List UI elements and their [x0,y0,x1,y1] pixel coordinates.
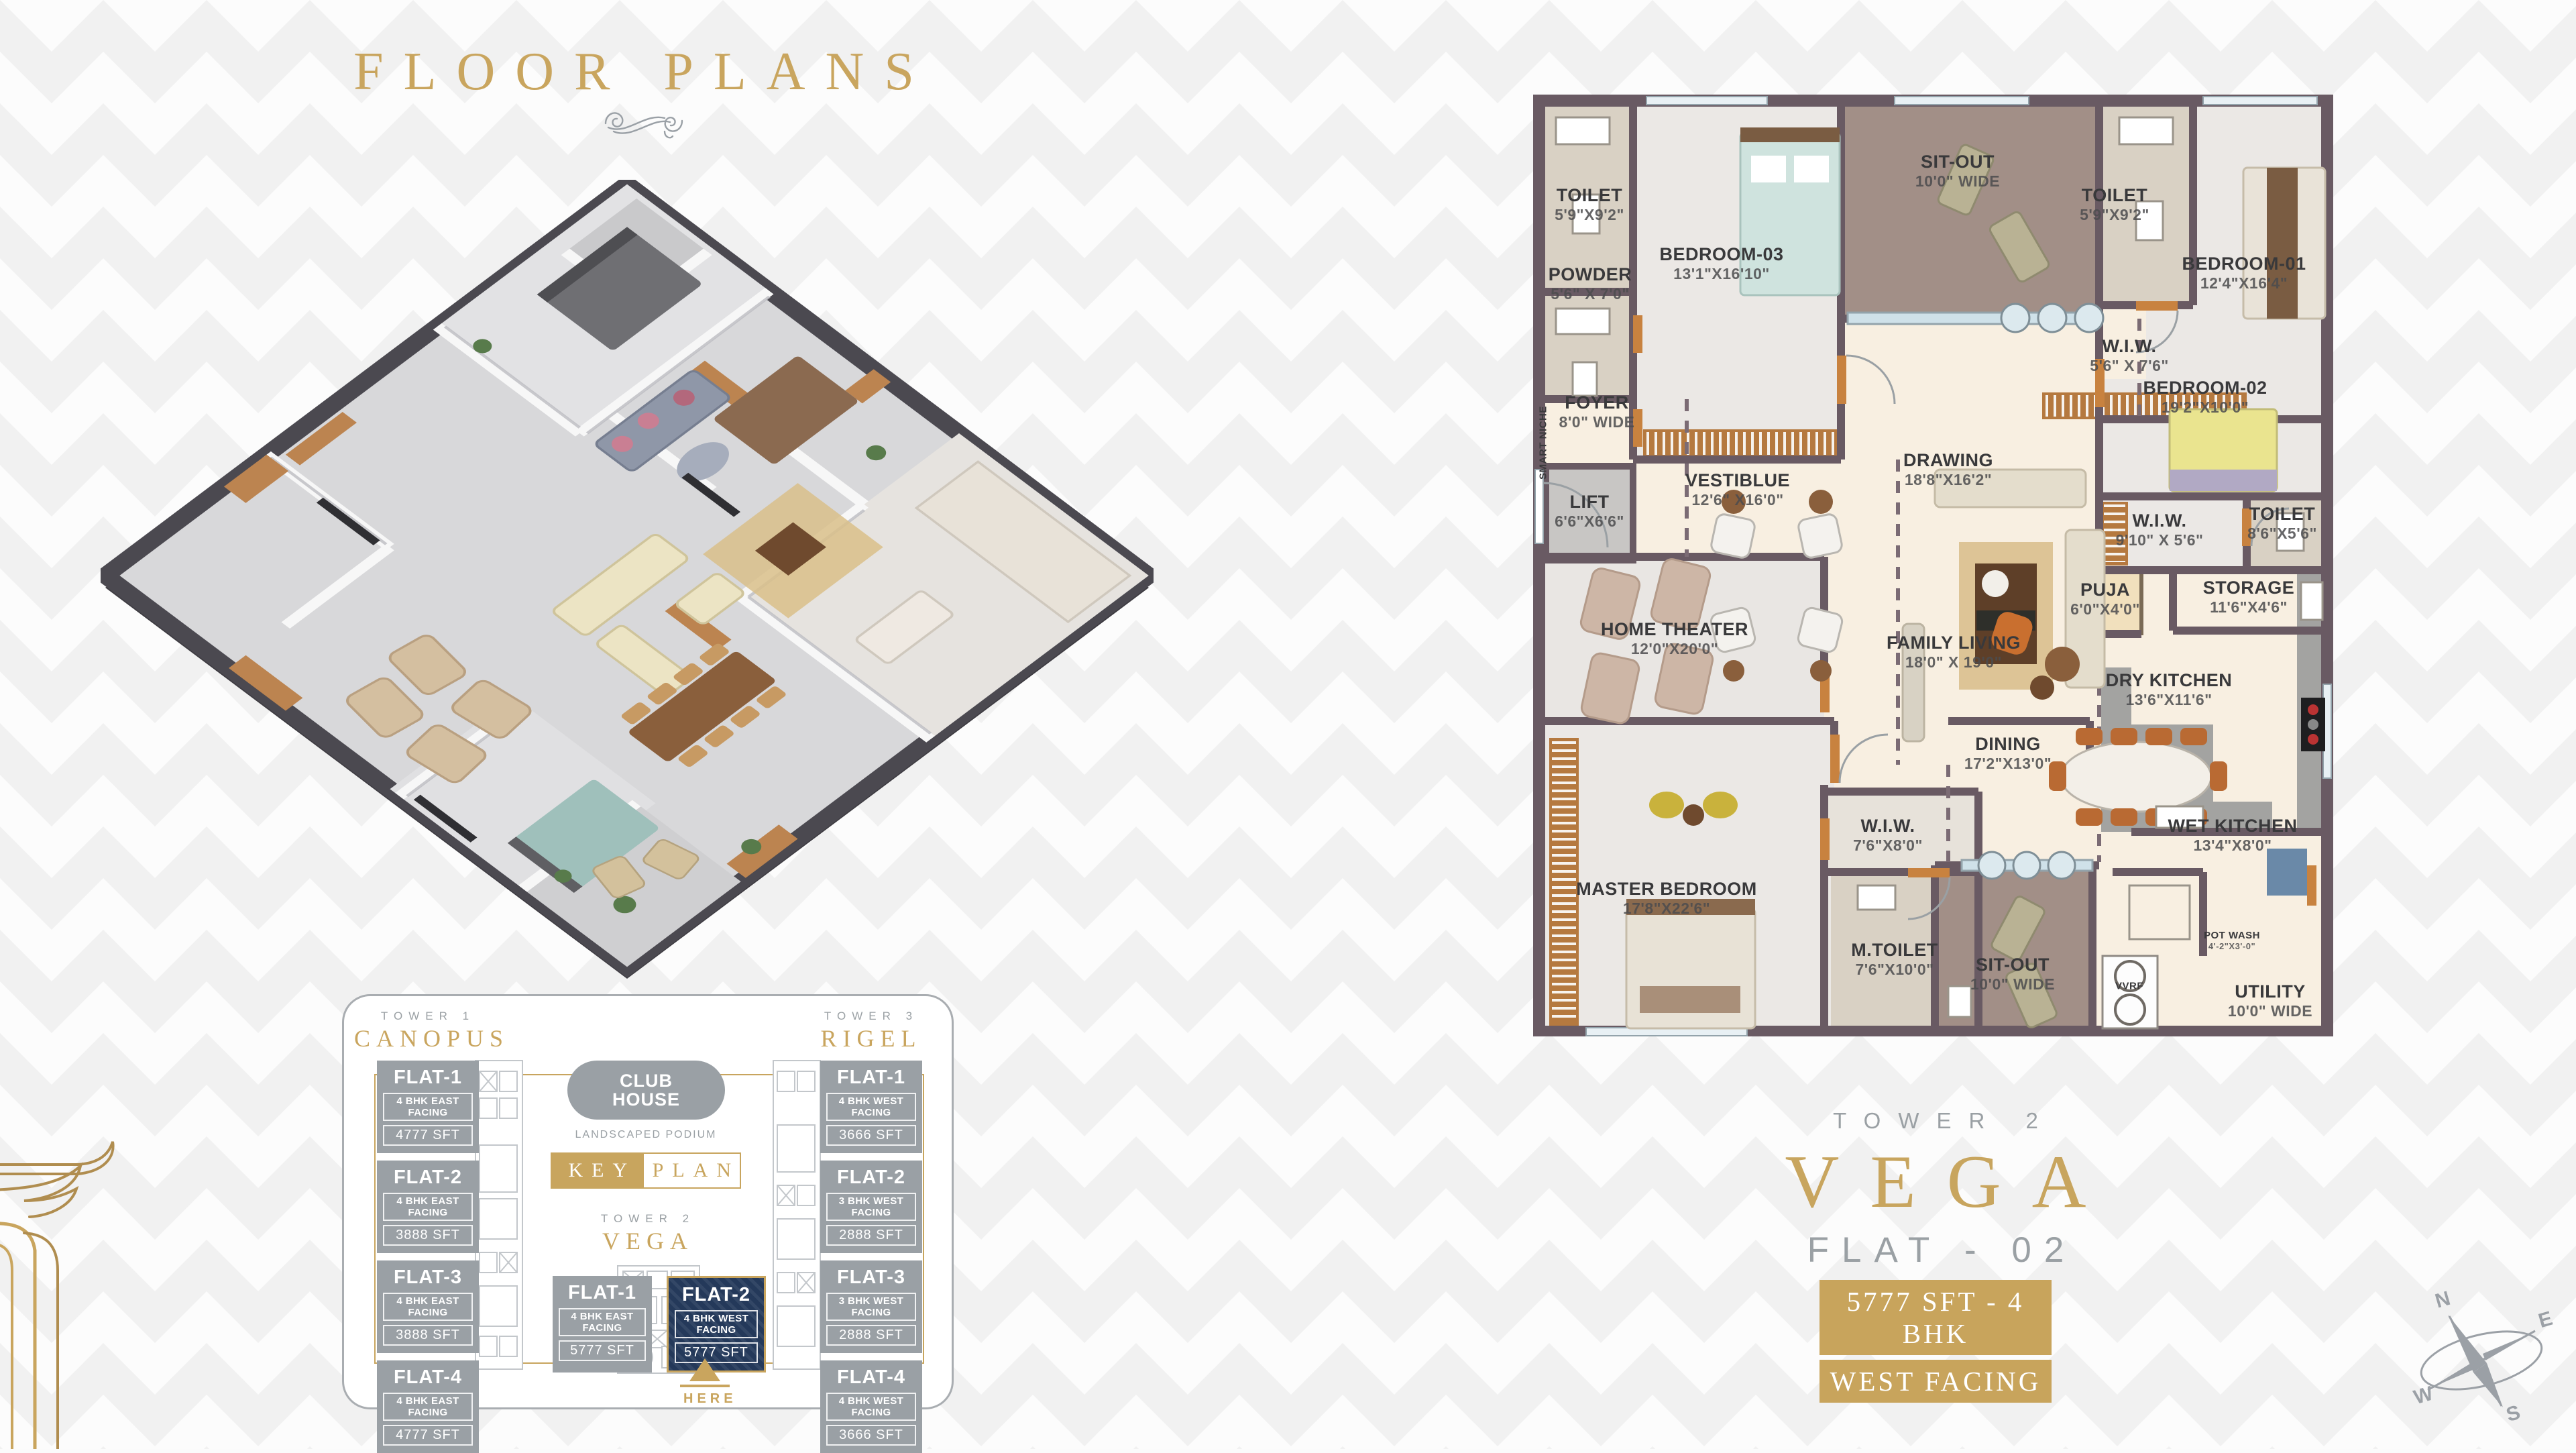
info-badges: 5777 SFT - 4 BHK WEST FACING [1819,1280,2052,1403]
facing-badge: WEST FACING [1819,1360,2052,1403]
floor-plan-2d: TOILET5'9"X9'2"POWDER5'6" X 7'0"BEDROOM-… [1532,94,2334,1036]
key-plan-badge: KEY PLAN [551,1152,741,1189]
keyplan-flat-2: FLAT-23 BHK WEST FACING2888 SFT [820,1161,922,1253]
tower1-name: CANOPUS [354,1024,502,1053]
compass-n: N [2432,1287,2453,1313]
compass-icon: N E S W [2401,1275,2562,1436]
room-label: STORAGE11'6"X4'6" [2203,578,2295,616]
tower1-title: TOWER 1 CANOPUS [354,1010,502,1053]
keyplan-flat-4: FLAT-44 BHK WEST FACING3666 SFT [820,1360,922,1453]
room-label: VVRF [2115,981,2143,992]
here-label: HERE [679,1391,730,1407]
area-badge: 5777 SFT - 4 BHK [1819,1280,2052,1355]
room-label: DRAWING18'8"X16'2" [1903,450,1993,489]
room-label: BEDROOM-0219'2"X10'0" [2143,378,2267,417]
room-label: W.I.W.7'6"X8'0" [1853,816,1923,855]
room-label: DINING17'2"X13'0" [1964,734,2052,773]
room-label: LIFT6'6"X6'6" [1555,492,1624,531]
room-label: POT WASH4'-2"X3'-0" [2204,930,2260,951]
room-label: UTILITY10'0" WIDE [2228,981,2312,1020]
room-label: MASTER BEDROOM17'8"X22'6" [1576,879,1757,918]
canopus-flat-column: FLAT-14 BHK EAST FACING4777 SFTFLAT-24 B… [377,1061,479,1453]
here-arrow-icon [689,1358,720,1381]
room-label: FOYER8'0" WIDE [1559,392,1635,431]
room-label: SIT-OUT10'0" WIDE [1915,152,2000,191]
floor-plan-3d: LIFT [101,180,1154,982]
room-label: POWDER5'6" X 7'0" [1549,264,1632,303]
club-house-line2: HOUSE [612,1090,680,1109]
tower1-core-drawing [473,1058,525,1372]
info-tower: TOWER 2 [1701,1108,2170,1134]
room-label: BEDROOM-0313'1"X16'10" [1659,244,1783,283]
tower2-id: TOWER 2 [574,1212,722,1226]
room-label: W.I.W.9'10" X 5'6" [2116,510,2204,549]
landscaped-podium-label: LANDSCAPED PODIUM [545,1129,746,1141]
flat-info-block: TOWER 2 VEGA FLAT - 02 [1701,1108,2170,1271]
key-plan-panel: TOWER 1 CANOPUS TOWER 3 RIGEL TOWER 2 VE… [342,994,954,1409]
keyplan-flat-4: FLAT-44 BHK EAST FACING4777 SFT [377,1360,479,1453]
tower1-id: TOWER 1 [354,1010,502,1023]
corner-flourish-icon [0,1136,131,1449]
title-flourish-icon [600,101,687,142]
room-label: M.TOILET7'6"X10'0" [1851,940,1938,979]
key-plan-badge-plan: PLAN [644,1154,740,1187]
keyplan-flat-1: FLAT-14 BHK EAST FACING5777 SFT [553,1276,652,1373]
keyplan-flat-3: FLAT-34 BHK EAST FACING3888 SFT [377,1260,479,1353]
room-label: VESTIBLUE12'6" X16'0" [1685,470,1790,509]
room-label: TOILET5'9"X9'2" [2080,185,2149,224]
room-label: SMART NICHE [1538,406,1549,480]
rigel-flat-column: FLAT-14 BHK WEST FACING3666 SFTFLAT-23 B… [820,1061,922,1453]
info-tower-name: VEGA [1701,1139,2170,1226]
room-label: BEDROOM-0112'4"X16'4" [2182,254,2306,292]
keyplan-flat-3: FLAT-33 BHK WEST FACING2888 SFT [820,1260,922,1353]
tower3-id: TOWER 3 [797,1010,945,1023]
room-label: WET KITCHEN13'4"X8'0" [2168,816,2298,855]
room-label: TOILET8'6"X5'6" [2247,504,2317,543]
plan2d-labels: TOILET5'9"X9'2"POWDER5'6" X 7'0"BEDROOM-… [1532,94,2334,1036]
club-house-line1: CLUB [620,1071,673,1090]
keyplan-flat-1: FLAT-14 BHK EAST FACING4777 SFT [377,1061,479,1153]
room-label: FAMILY LIVING18'0" X 19'0" [1887,633,2021,671]
tower2-name: VEGA [574,1227,722,1255]
room-label: W.I.W.5'6" X 7'6" [2090,336,2169,375]
keyplan-flat-1: FLAT-14 BHK WEST FACING3666 SFT [820,1061,922,1153]
room-label: TOILET5'9"X9'2" [1555,185,1624,224]
vega-flat-row: FLAT-14 BHK EAST FACING5777 SFTFLAT-24 B… [553,1276,767,1373]
room-label: SIT-OUT10'0" WIDE [1970,955,2055,993]
info-flat-number: FLAT - 02 [1701,1230,2170,1271]
room-label: PUJA6'0"X4'0" [2070,580,2140,618]
tower3-title: TOWER 3 RIGEL [797,1010,945,1053]
room-label: HOME THEATER12'0"X20'0" [1601,619,1748,658]
compass-s: S [2504,1401,2522,1426]
keyplan-flat-2: FLAT-24 BHK EAST FACING3888 SFT [377,1161,479,1253]
tower3-name: RIGEL [797,1024,945,1053]
tower2-title: TOWER 2 VEGA [574,1212,722,1255]
compass-e: E [2536,1307,2555,1332]
here-bar [680,1385,730,1387]
page-title: FLOOR PLANS [107,42,1180,103]
key-plan-badge-key: KEY [552,1154,644,1187]
club-house: CLUB HOUSE [567,1061,725,1120]
tower3-core-drawing [771,1058,823,1372]
here-marker: HERE [679,1358,730,1407]
room-label: DRY KITCHEN13'6"X11'6" [2106,670,2233,709]
